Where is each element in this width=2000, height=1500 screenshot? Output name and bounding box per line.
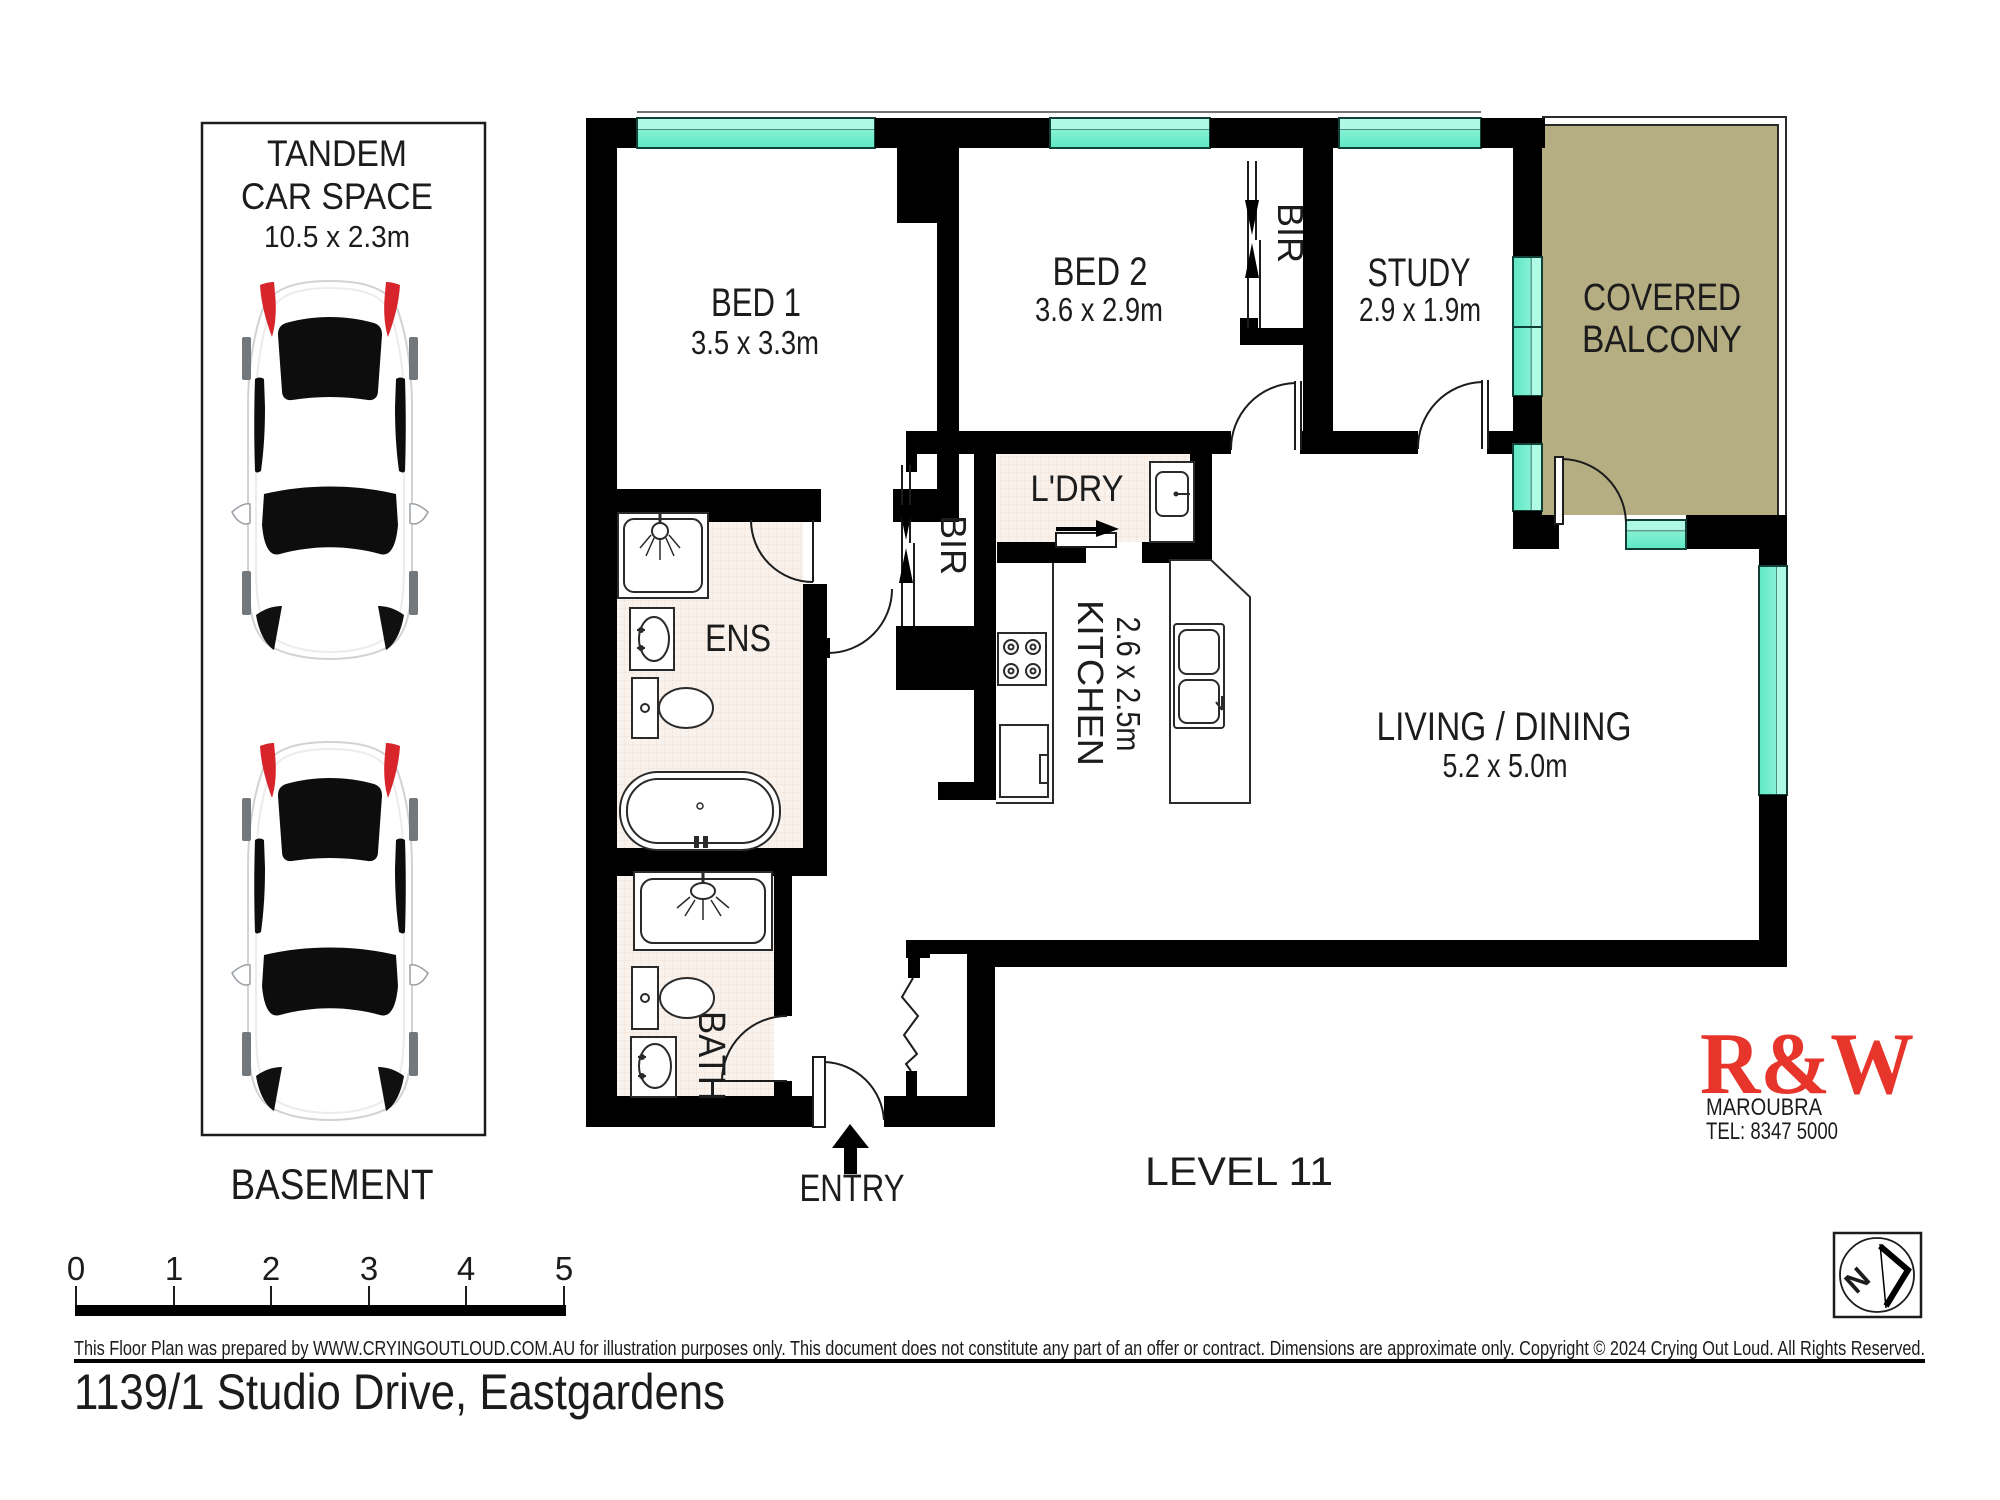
svg-text:L'DRY: L'DRY xyxy=(1031,468,1124,509)
svg-text:BIR: BIR xyxy=(1270,203,1311,263)
svg-text:CAR SPACE: CAR SPACE xyxy=(241,176,433,217)
svg-text:MAROUBRA: MAROUBRA xyxy=(1706,1094,1822,1121)
svg-text:5: 5 xyxy=(555,1250,573,1287)
svg-text:5.2 x 5.0m: 5.2 x 5.0m xyxy=(1443,747,1568,784)
svg-text:BED 2: BED 2 xyxy=(1053,250,1148,294)
svg-text:3: 3 xyxy=(360,1250,378,1287)
svg-text:ENTRY: ENTRY xyxy=(800,1168,905,1210)
svg-text:BALCONY: BALCONY xyxy=(1582,319,1742,361)
svg-text:BASEMENT: BASEMENT xyxy=(231,1161,434,1209)
svg-text:0: 0 xyxy=(67,1250,85,1287)
svg-text:10.5 x 2.3m: 10.5 x 2.3m xyxy=(264,219,410,254)
svg-text:3.5 x 3.3m: 3.5 x 3.3m xyxy=(691,324,819,361)
svg-text:LEVEL 11: LEVEL 11 xyxy=(1145,1150,1333,1194)
svg-text:4: 4 xyxy=(457,1250,475,1287)
svg-text:2.6 x 2.5m: 2.6 x 2.5m xyxy=(1110,617,1147,752)
svg-text:STUDY: STUDY xyxy=(1368,251,1471,295)
svg-text:TEL: 8347 5000: TEL: 8347 5000 xyxy=(1706,1118,1838,1145)
svg-text:1: 1 xyxy=(165,1250,183,1287)
svg-text:TANDEM: TANDEM xyxy=(267,133,407,174)
svg-text:COVERED: COVERED xyxy=(1583,277,1741,319)
svg-text:BED 1: BED 1 xyxy=(711,281,801,325)
svg-text:LIVING / DINING: LIVING / DINING xyxy=(1377,705,1632,749)
svg-text:This Floor Plan was prepared b: This Floor Plan was prepared by WWW.CRYI… xyxy=(74,1338,1925,1360)
svg-text:KITCHEN: KITCHEN xyxy=(1070,600,1111,766)
svg-text:2.9 x 1.9m: 2.9 x 1.9m xyxy=(1359,291,1481,328)
svg-text:1139/1 Studio Drive, Eastgarde: 1139/1 Studio Drive, Eastgardens xyxy=(74,1364,725,1420)
svg-text:BIR: BIR xyxy=(933,515,974,575)
svg-text:2: 2 xyxy=(262,1250,280,1287)
svg-text:3.6 x 2.9m: 3.6 x 2.9m xyxy=(1035,291,1163,328)
svg-text:ENS: ENS xyxy=(705,618,771,660)
